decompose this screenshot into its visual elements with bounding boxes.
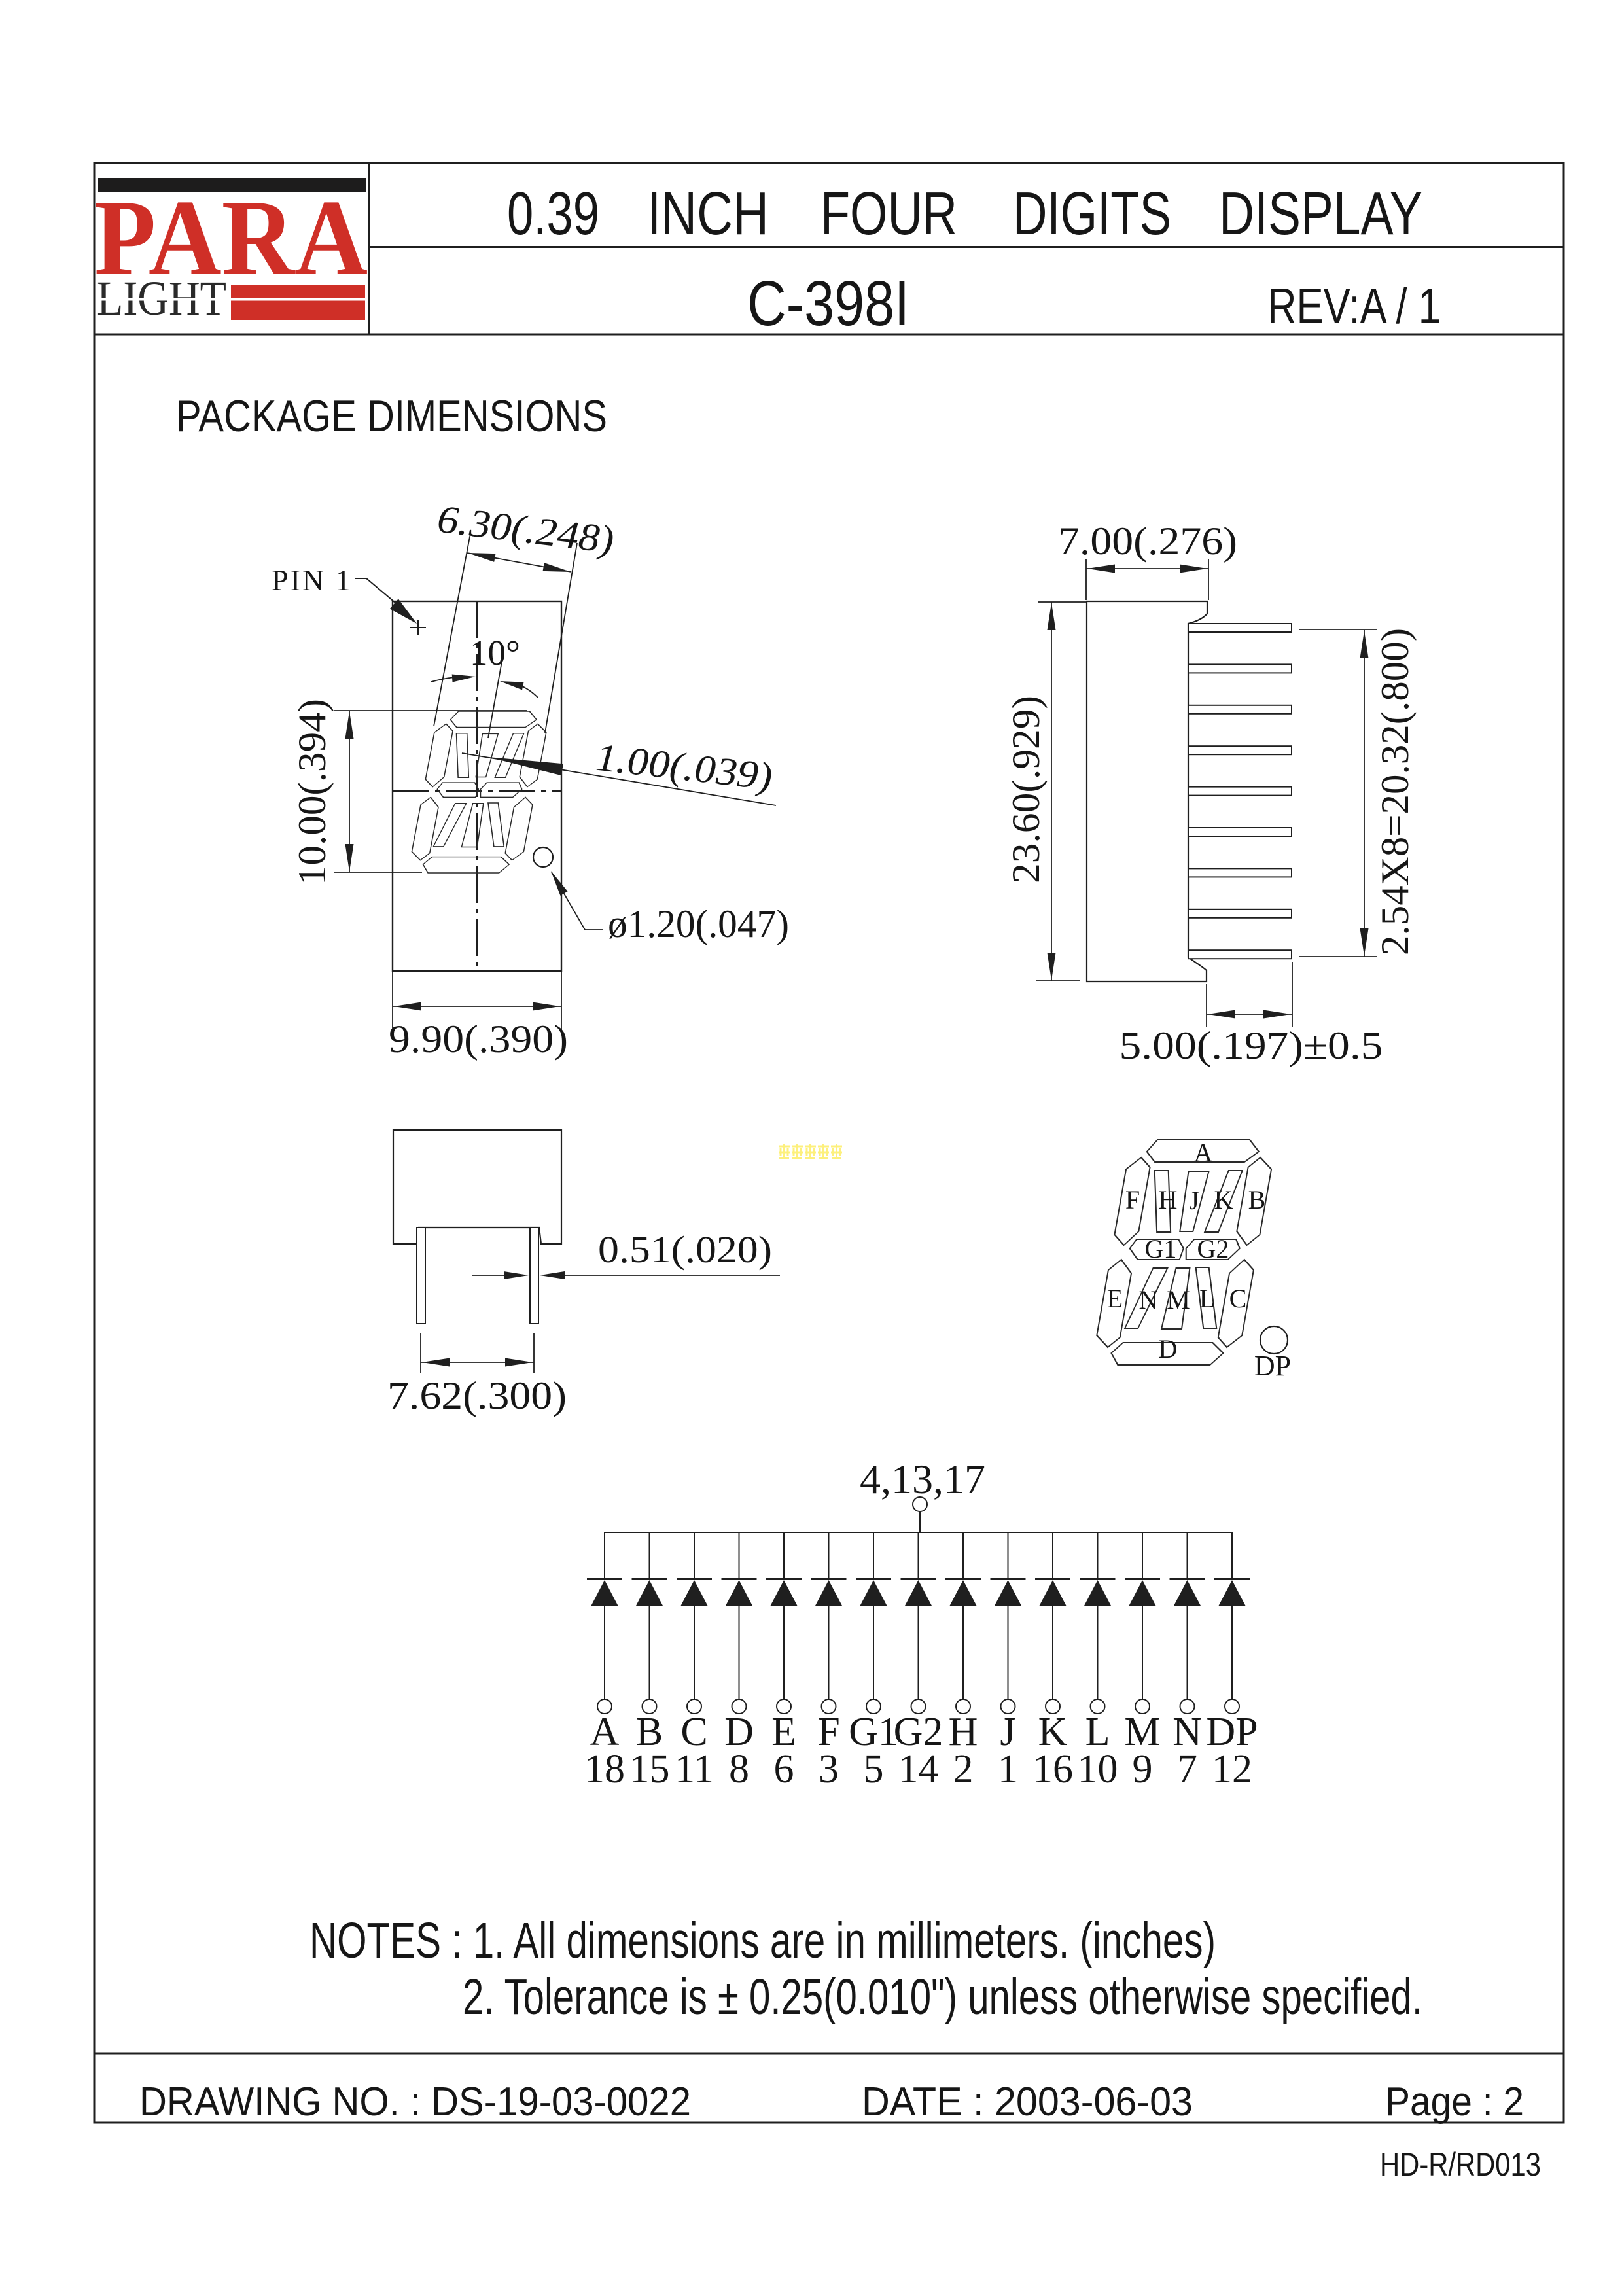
svg-text:5.00(.197)±0.5: 5.00(.197)±0.5 xyxy=(1120,1024,1383,1067)
svg-text:8: 8 xyxy=(729,1747,749,1792)
svg-text:E: E xyxy=(1107,1284,1123,1313)
svg-text:0.51(.020): 0.51(.020) xyxy=(598,1228,772,1271)
svg-text:14: 14 xyxy=(898,1747,939,1792)
svg-text:L: L xyxy=(1199,1284,1215,1313)
svg-text:B: B xyxy=(1248,1185,1266,1214)
svg-text:2.54X8=20.32(.800): 2.54X8=20.32(.800) xyxy=(1373,628,1417,955)
svg-text:9.90(.390): 9.90(.390) xyxy=(389,1017,568,1061)
svg-text:F: F xyxy=(1125,1185,1140,1214)
svg-text:N: N xyxy=(1139,1285,1158,1315)
svg-text:HD-R/RD013: HD-R/RD013 xyxy=(1380,2146,1541,2183)
svg-text:A: A xyxy=(1194,1138,1213,1167)
svg-text:1.00(.039): 1.00(.039) xyxy=(590,735,778,798)
svg-text:PIN 1: PIN 1 xyxy=(272,563,353,597)
svg-text:DISPLAY: DISPLAY xyxy=(1219,179,1422,247)
svg-text:4,13,17: 4,13,17 xyxy=(860,1456,985,1502)
svg-text:10: 10 xyxy=(1078,1747,1118,1792)
svg-text:15: 15 xyxy=(629,1747,670,1792)
svg-text:0.39: 0.39 xyxy=(507,179,599,247)
svg-text:10.00(.394): 10.00(.394) xyxy=(291,699,334,885)
svg-text:5: 5 xyxy=(864,1747,884,1792)
svg-text:C-398I: C-398I xyxy=(747,268,909,339)
svg-text:18: 18 xyxy=(584,1747,625,1792)
svg-text:G1: G1 xyxy=(1145,1234,1177,1263)
svg-text:6.30(.248): 6.30(.248) xyxy=(432,498,620,562)
svg-text:7: 7 xyxy=(1177,1747,1197,1792)
svg-text:7.62(.300): 7.62(.300) xyxy=(387,1374,567,1417)
svg-text:12: 12 xyxy=(1212,1747,1252,1792)
svg-text:DIGITS: DIGITS xyxy=(1013,179,1171,247)
svg-text:NOTES : 1. All dimensions are: NOTES : 1. All dimensions are in millime… xyxy=(309,1913,1216,1969)
svg-text:DATE : 2003-06-03: DATE : 2003-06-03 xyxy=(862,2079,1193,2125)
svg-text:INCH: INCH xyxy=(647,179,769,247)
svg-text:FOUR: FOUR xyxy=(820,179,957,247)
svg-text:DRAWING NO. : DS-19-03-0022: DRAWING NO. : DS-19-03-0022 xyxy=(139,2079,691,2125)
svg-text:PACKAGE DIMENSIONS: PACKAGE DIMENSIONS xyxy=(176,391,607,441)
svg-text:1: 1 xyxy=(998,1747,1018,1792)
svg-text:11: 11 xyxy=(675,1747,714,1792)
svg-text:3: 3 xyxy=(819,1747,839,1792)
svg-text:J: J xyxy=(1189,1186,1199,1215)
svg-text:6: 6 xyxy=(774,1747,794,1792)
svg-text:C: C xyxy=(1229,1284,1247,1313)
svg-text:REV:A / 1: REV:A / 1 xyxy=(1267,278,1441,334)
svg-text:H: H xyxy=(1159,1185,1178,1214)
svg-text:2: 2 xyxy=(953,1747,974,1792)
svg-text:K: K xyxy=(1214,1185,1233,1214)
svg-text:D: D xyxy=(1159,1334,1178,1364)
svg-text:ø1.20(.047): ø1.20(.047) xyxy=(608,902,789,945)
svg-text:2. Tolerance is ± 0.25(0.010"): 2. Tolerance is ± 0.25(0.010") unless ot… xyxy=(463,1969,1422,2025)
svg-text:M: M xyxy=(1167,1285,1190,1315)
svg-text:7.00(.276): 7.00(.276) xyxy=(1058,520,1237,563)
svg-text:9: 9 xyxy=(1133,1747,1153,1792)
svg-text:23.60(.929): 23.60(.929) xyxy=(1004,696,1048,883)
svg-text:16: 16 xyxy=(1032,1747,1073,1792)
svg-text:DP: DP xyxy=(1254,1350,1291,1382)
svg-text:Page : 2: Page : 2 xyxy=(1385,2079,1524,2125)
svg-text:10°: 10° xyxy=(470,633,520,673)
svg-text:G2: G2 xyxy=(1197,1234,1229,1263)
